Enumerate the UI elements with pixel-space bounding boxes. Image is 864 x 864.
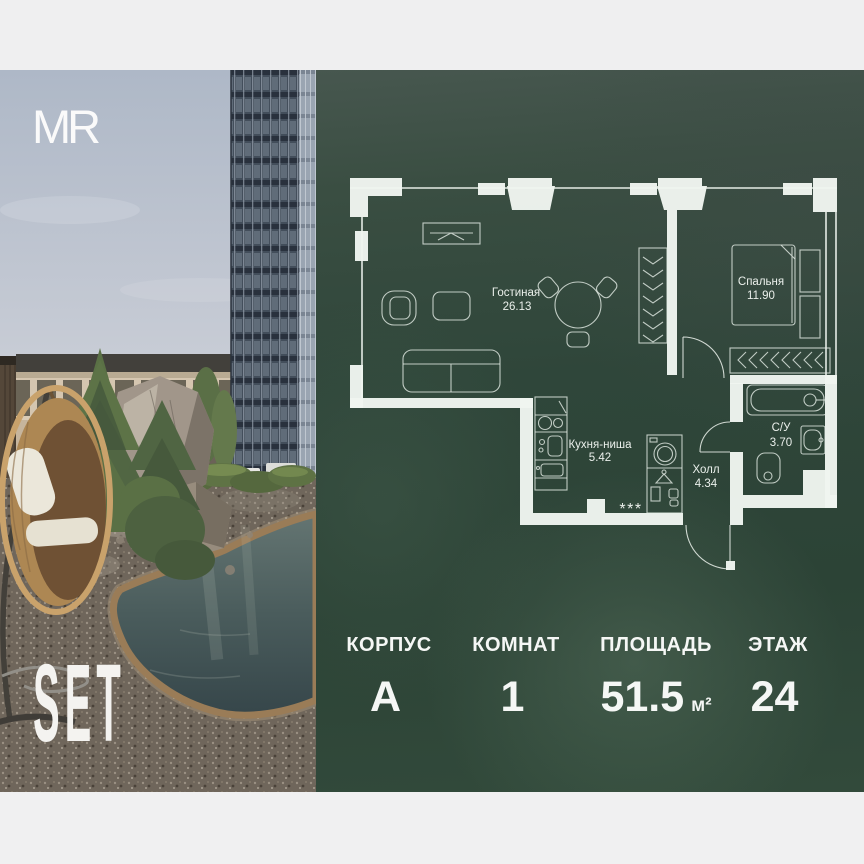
cloud bbox=[0, 196, 140, 224]
window-icon bbox=[508, 178, 552, 186]
info-value: А bbox=[346, 676, 431, 719]
shoe-box-icon bbox=[651, 487, 660, 501]
room-name: Кухня-ниша bbox=[568, 439, 632, 451]
info-rooms: КОМНАТ 1 bbox=[472, 634, 560, 719]
window-icon bbox=[478, 183, 505, 195]
info-area: ПЛОЩАДЬ 51.5м² bbox=[600, 634, 712, 719]
dining-table-icon bbox=[555, 282, 601, 328]
bedroom-door bbox=[683, 337, 724, 378]
courtyard-photo: MR SET bbox=[0, 70, 316, 792]
project-logo: SET bbox=[33, 650, 126, 760]
room-name: Спальня bbox=[738, 276, 784, 288]
chair-icon bbox=[594, 275, 618, 300]
area-unit: м² bbox=[691, 695, 711, 716]
chair-icon bbox=[567, 332, 589, 347]
plan-panel: Гостиная 26.13 Спальня 11.90 Кухня-ниша … bbox=[316, 70, 864, 792]
info-value: 1 bbox=[472, 676, 560, 719]
room-area: 3.70 bbox=[770, 437, 792, 449]
bottom-margin-bar bbox=[0, 792, 864, 864]
partition-hall-bath bbox=[730, 383, 743, 422]
floor-plan: Гостиная 26.13 Спальня 11.90 Кухня-ниша … bbox=[340, 165, 845, 585]
top-margin-bar bbox=[0, 0, 864, 70]
shaft bbox=[803, 470, 830, 495]
bedroom-furniture bbox=[730, 245, 830, 373]
developer-logo: MR bbox=[32, 103, 97, 150]
armchair-icon bbox=[382, 291, 416, 325]
window-icon bbox=[658, 178, 702, 186]
radiator bbox=[355, 231, 368, 261]
listing-card: MR SET bbox=[0, 0, 864, 864]
bedroom-bottom-wall bbox=[730, 375, 837, 384]
doors bbox=[683, 337, 735, 570]
room-name: С/У bbox=[772, 422, 792, 434]
room-area: 11.90 bbox=[747, 290, 775, 302]
info-value: 24 bbox=[748, 676, 808, 719]
coffee-table-icon bbox=[433, 292, 470, 320]
kitchen-marker: *** bbox=[619, 501, 642, 518]
dresser-icon bbox=[800, 250, 820, 292]
room-name: Холл bbox=[692, 464, 719, 476]
info-label: ПЛОЩАДЬ bbox=[600, 634, 712, 657]
toilet-icon bbox=[757, 453, 780, 483]
room-name: Гостиная bbox=[492, 287, 540, 299]
info-label: КОРПУС bbox=[346, 634, 431, 657]
info-label: КОМНАТ bbox=[472, 634, 560, 657]
window-icon bbox=[783, 183, 812, 195]
bathroom-furniture bbox=[747, 385, 828, 483]
bathroom-door bbox=[700, 422, 730, 452]
shoe-icon bbox=[669, 489, 678, 498]
room-area: 4.34 bbox=[695, 478, 718, 490]
entrance-door bbox=[686, 525, 730, 569]
dresser-icon bbox=[800, 296, 820, 338]
column bbox=[587, 499, 605, 513]
info-value: 51.5м² bbox=[600, 676, 712, 719]
info-label: ЭТАЖ bbox=[748, 634, 808, 657]
info-floor: ЭТАЖ 24 bbox=[748, 634, 808, 719]
window-icon bbox=[630, 183, 657, 195]
room-area: 26.13 bbox=[503, 301, 532, 313]
info-building: КОРПУС А bbox=[346, 634, 431, 719]
partition-living-bedroom bbox=[667, 210, 677, 375]
windows bbox=[478, 178, 812, 210]
sink-icon bbox=[539, 417, 552, 430]
room-area: 5.42 bbox=[589, 452, 611, 464]
